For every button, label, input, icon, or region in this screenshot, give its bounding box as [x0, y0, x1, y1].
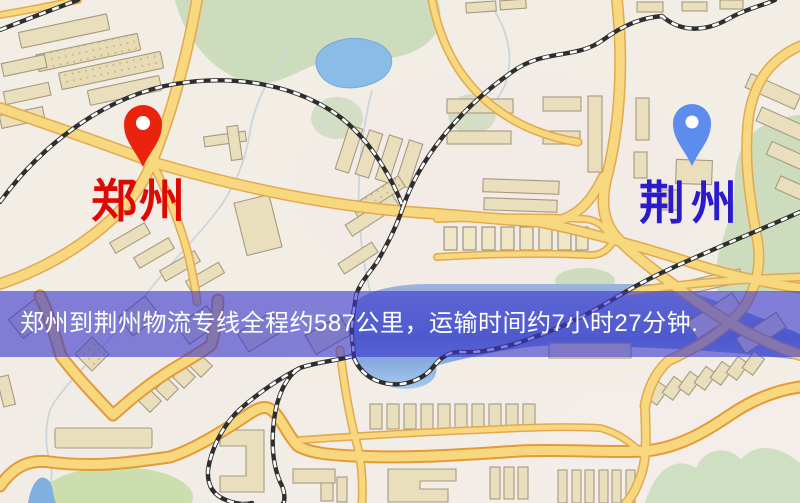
map-canvas[interactable]: 郑州 荆州: [0, 0, 800, 503]
route-info-text: 郑州到荆州物流专线全程约587公里，运输时间约7小时27分钟.: [20, 310, 698, 337]
logistics-route-map: 郑州 荆州 郑州到荆州物流专线全程约587公里，运输时间约7小时27分钟.: [0, 0, 800, 503]
origin-label: 郑州: [91, 176, 187, 227]
destination-label: 荆州: [639, 178, 743, 229]
route-info-banner: 郑州到荆州物流专线全程约587公里，运输时间约7小时27分钟.: [0, 291, 800, 357]
